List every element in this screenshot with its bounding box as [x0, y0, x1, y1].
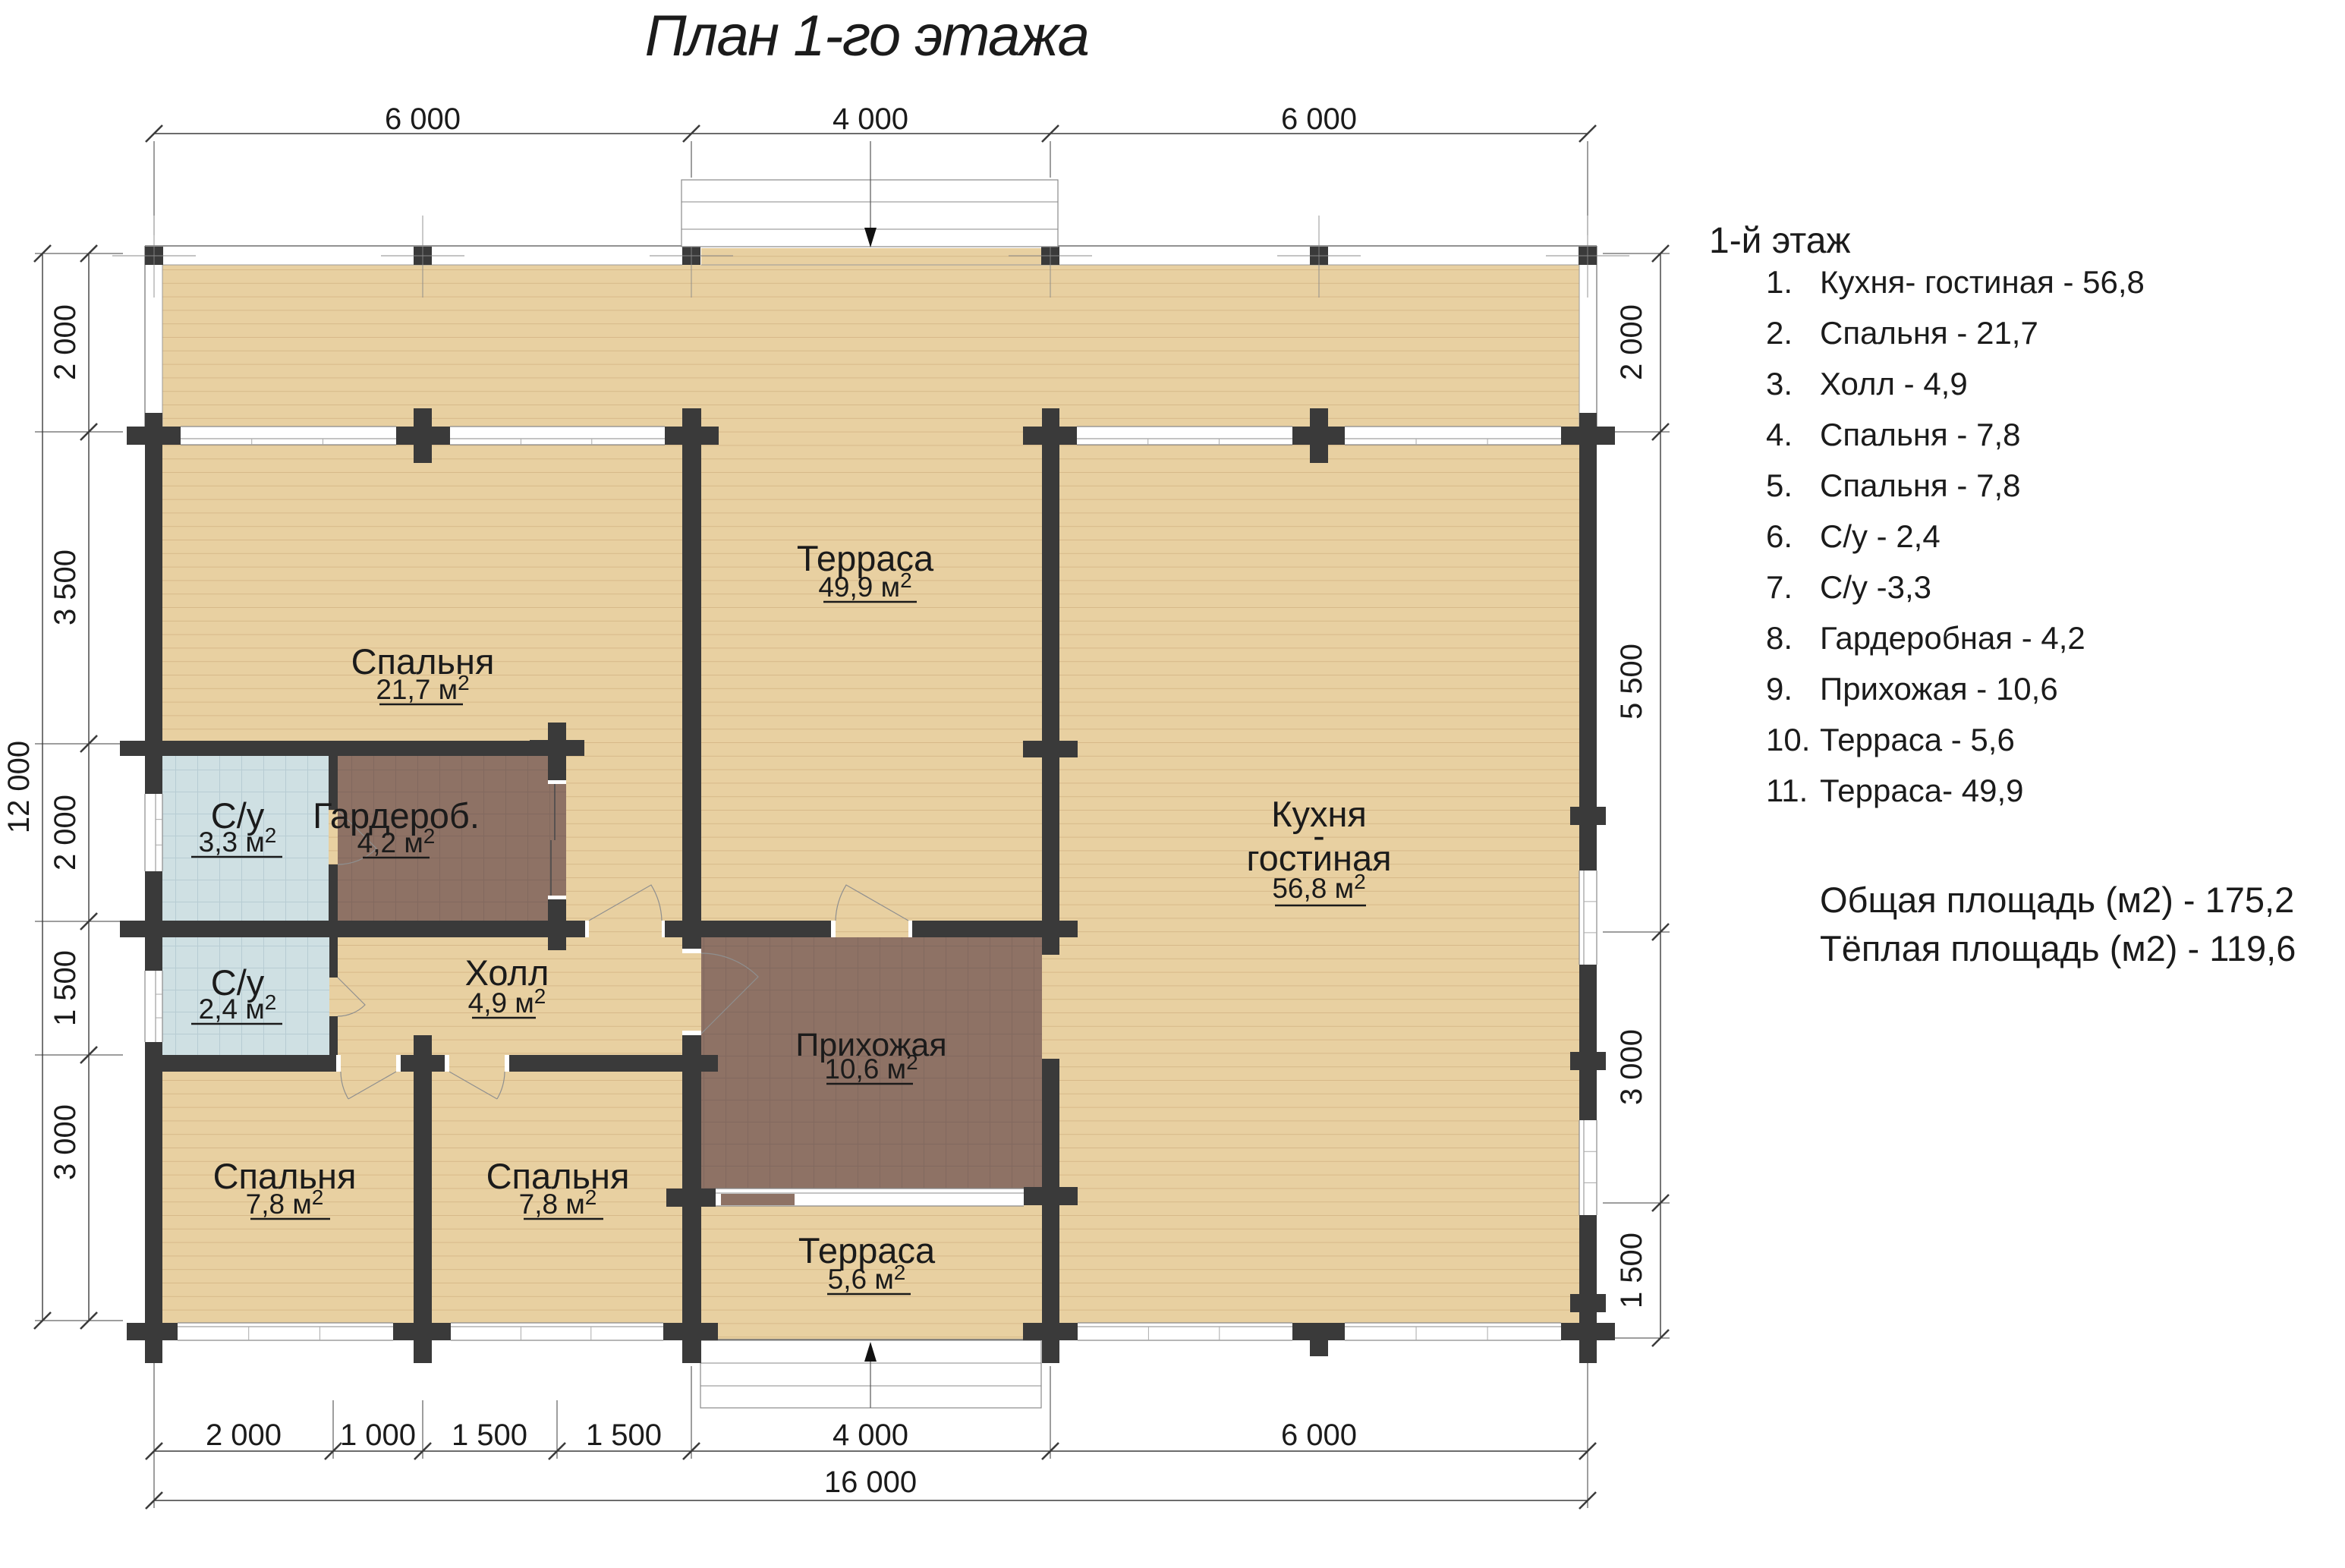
svg-text:10.: 10. [1766, 722, 1810, 757]
svg-text:21,7 м2: 21,7 м2 [376, 671, 469, 705]
svg-text:С/у - 2,4: С/у - 2,4 [1820, 518, 1941, 554]
svg-text:Терраса - 5,6: Терраса - 5,6 [1820, 722, 2015, 757]
svg-text:49,9 м2: 49,9 м2 [818, 568, 911, 603]
svg-text:9.: 9. [1766, 671, 1793, 707]
svg-text:10,6 м2: 10,6 м2 [824, 1050, 918, 1085]
svg-text:4 000: 4 000 [833, 102, 908, 136]
svg-text:1 500: 1 500 [452, 1418, 527, 1452]
svg-text:16 000: 16 000 [824, 1466, 917, 1499]
svg-text:Кухня- гостиная - 56,8: Кухня- гостиная - 56,8 [1820, 264, 2145, 300]
svg-text:Спальня - 7,8: Спальня - 7,8 [1820, 468, 2020, 503]
svg-text:Прихожая - 10,6: Прихожая - 10,6 [1820, 671, 2058, 707]
svg-text:Спальня - 7,8: Спальня - 7,8 [1820, 417, 2020, 452]
svg-text:4.: 4. [1766, 417, 1793, 452]
svg-text:1 000: 1 000 [340, 1418, 416, 1452]
svg-text:С/у -3,3: С/у -3,3 [1820, 569, 1931, 605]
svg-text:1 500: 1 500 [1615, 1233, 1648, 1308]
svg-text:2 000: 2 000 [206, 1418, 282, 1452]
svg-text:1 500: 1 500 [49, 950, 82, 1026]
svg-text:56,8 м2: 56,8 м2 [1272, 870, 1365, 904]
svg-text:Гардеробная - 4,2: Гардеробная - 4,2 [1820, 620, 2085, 656]
svg-text:5.: 5. [1766, 468, 1793, 503]
svg-text:3.: 3. [1766, 366, 1793, 401]
svg-text:1.: 1. [1766, 264, 1793, 300]
svg-text:2 000: 2 000 [49, 795, 82, 871]
svg-text:6 000: 6 000 [385, 102, 461, 136]
svg-text:3 000: 3 000 [49, 1104, 82, 1180]
svg-text:Тёплая площадь (м2) - 119,6: Тёплая площадь (м2) - 119,6 [1820, 928, 2296, 968]
svg-text:2.: 2. [1766, 315, 1793, 351]
svg-text:3 500: 3 500 [49, 549, 82, 625]
svg-text:12 000: 12 000 [2, 741, 36, 833]
svg-text:1 500: 1 500 [586, 1418, 662, 1452]
svg-text:2 000: 2 000 [1615, 304, 1648, 380]
svg-text:7.: 7. [1766, 569, 1793, 605]
svg-text:6 000: 6 000 [1281, 1418, 1357, 1452]
svg-text:План 1-го этажа: План 1-го этажа [645, 4, 1089, 68]
svg-text:2 000: 2 000 [49, 304, 82, 380]
svg-text:6 000: 6 000 [1281, 102, 1357, 136]
svg-text:Холл - 4,9: Холл - 4,9 [1820, 366, 1968, 401]
svg-text:6.: 6. [1766, 518, 1793, 554]
svg-text:Спальня - 21,7: Спальня - 21,7 [1820, 315, 2038, 351]
svg-text:1-й этаж: 1-й этаж [1709, 221, 1851, 261]
svg-text:3 000: 3 000 [1615, 1029, 1648, 1105]
svg-text:Терраса- 49,9: Терраса- 49,9 [1820, 773, 2024, 808]
svg-text:4 000: 4 000 [833, 1418, 908, 1452]
svg-text:5 500: 5 500 [1615, 644, 1648, 719]
svg-text:8.: 8. [1766, 620, 1793, 656]
svg-text:Общая площадь (м2) - 175,2: Общая площадь (м2) - 175,2 [1820, 880, 2294, 920]
svg-text:11.: 11. [1766, 773, 1808, 808]
